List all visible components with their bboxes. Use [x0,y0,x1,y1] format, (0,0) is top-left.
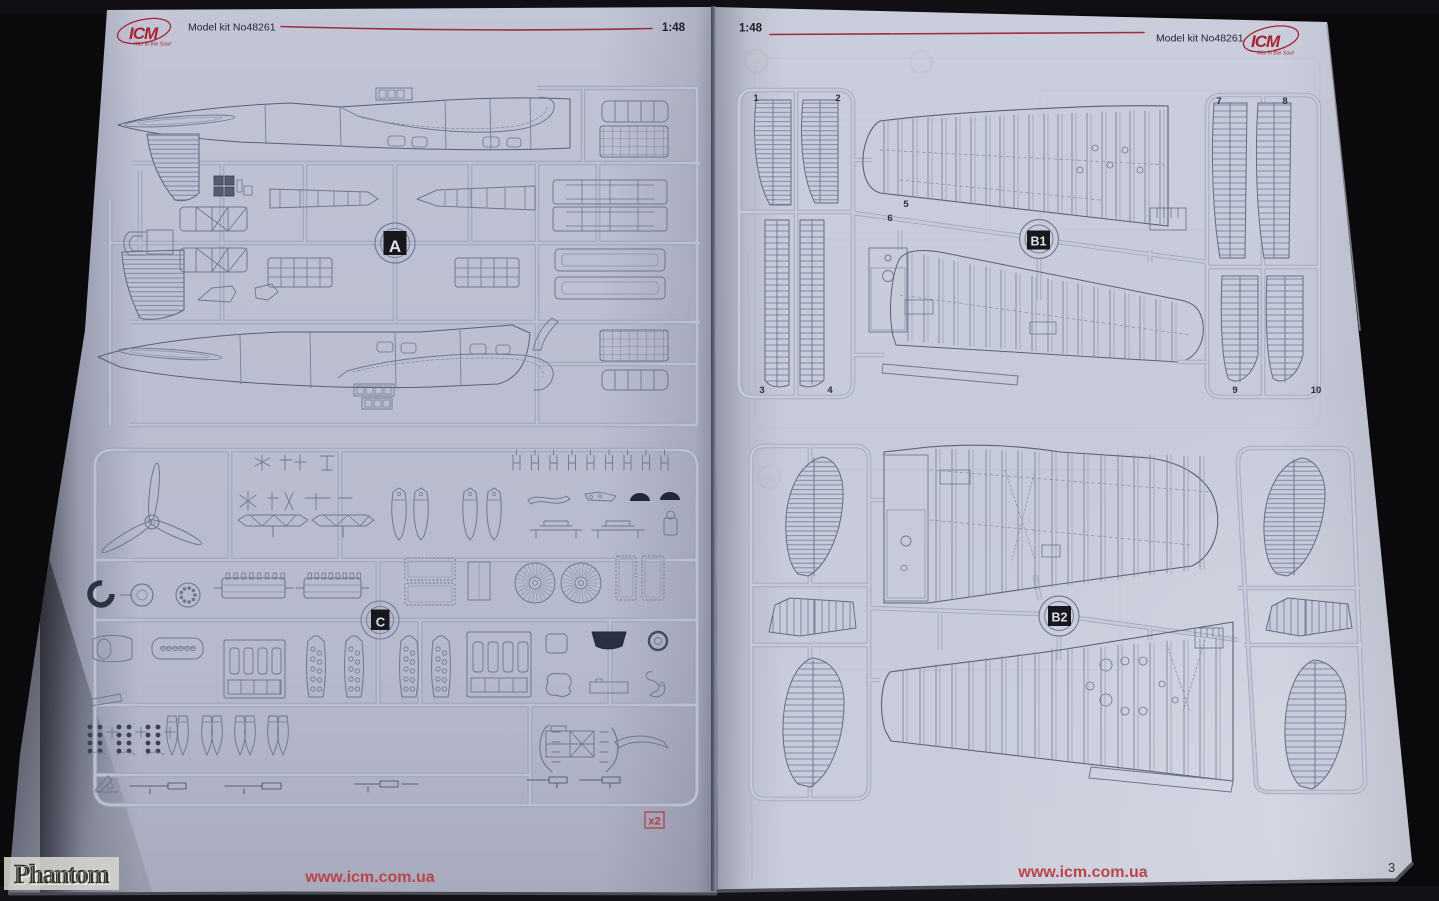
svg-text:x2: x2 [648,816,660,828]
svg-text:Kits in the Soul: Kits in the Soul [134,42,171,48]
svg-text:Kits in the Soul: Kits in the Soul [1257,51,1294,57]
svg-text:1:48: 1:48 [662,22,686,34]
svg-text:1: 1 [753,93,759,104]
svg-text:ICM: ICM [1251,32,1281,51]
svg-text:B2: B2 [1052,611,1068,625]
svg-text:8: 8 [1282,96,1287,107]
svg-text:Phantom: Phantom [14,859,111,889]
svg-text:1:48: 1:48 [739,23,763,35]
svg-text:Model kit No48261: Model kit No48261 [188,22,276,34]
svg-text:www.icm.com.ua: www.icm.com.ua [304,869,434,886]
svg-text:A: A [389,237,401,256]
svg-text:Model kit No48261: Model kit No48261 [1156,33,1244,45]
svg-text:9: 9 [1232,385,1237,396]
svg-text:7: 7 [1216,96,1221,107]
svg-text:10: 10 [1311,385,1322,396]
svg-text:B1: B1 [1031,235,1047,249]
svg-text:5: 5 [903,199,909,210]
svg-text:06: 06 [764,475,776,486]
svg-text:www.icm.com.ua: www.icm.com.ua [1017,864,1147,881]
svg-text:3: 3 [1388,860,1395,875]
svg-text:ICM: ICM [129,24,159,43]
svg-text:6: 6 [887,213,892,224]
svg-text:4: 4 [827,385,833,396]
svg-text:3: 3 [759,385,764,396]
svg-text:C: C [376,615,386,630]
svg-text:2: 2 [835,93,840,104]
